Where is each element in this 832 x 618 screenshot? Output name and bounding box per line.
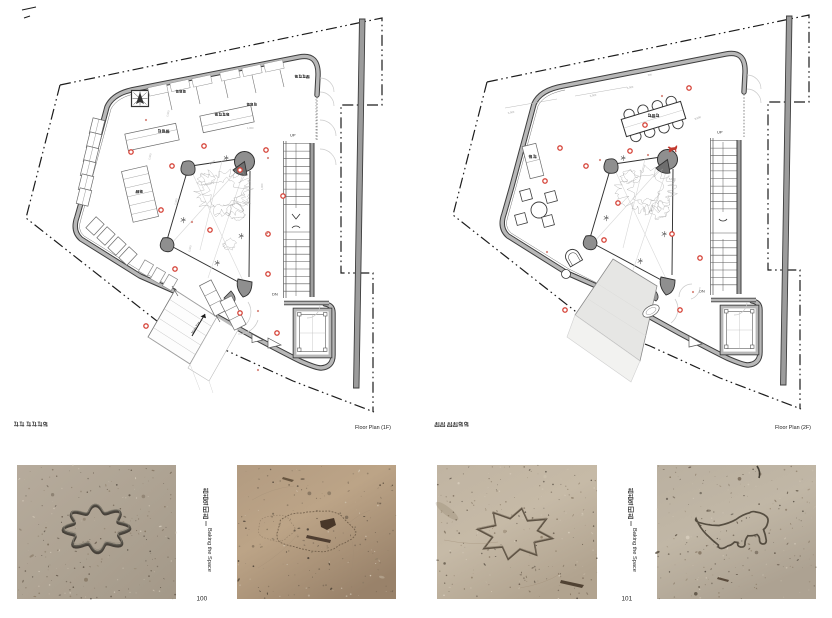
svg-text:Baking the Space: Baking the Space xyxy=(206,528,212,572)
svg-text:DN: DN xyxy=(272,292,278,297)
svg-text:Floor Plan (1F): Floor Plan (1F) xyxy=(355,425,391,431)
svg-text:1,000: 1,000 xyxy=(247,126,254,130)
svg-text:UP: UP xyxy=(290,133,296,138)
svg-text:101: 101 xyxy=(622,596,633,603)
svg-text:1,000: 1,000 xyxy=(260,183,264,190)
svg-text:5,000: 5,000 xyxy=(669,177,676,181)
svg-text:100: 100 xyxy=(197,596,208,603)
svg-text:UP: UP xyxy=(717,130,723,135)
svg-text:Baking the Space: Baking the Space xyxy=(631,528,637,572)
svg-text:Floor Plan (2F): Floor Plan (2F) xyxy=(775,425,811,431)
